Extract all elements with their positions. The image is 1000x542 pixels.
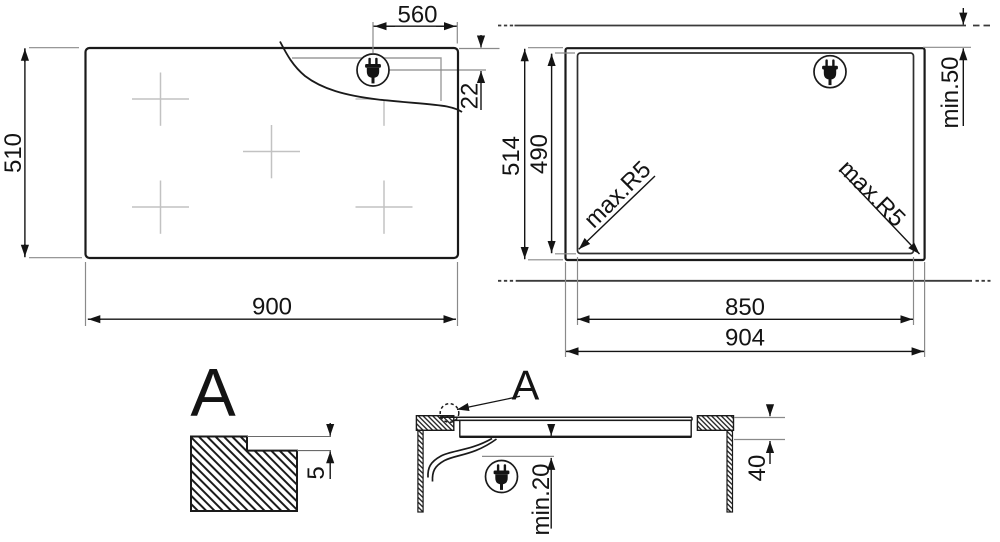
svg-text:510: 510 <box>0 133 27 173</box>
svg-text:min.50: min.50 <box>937 56 964 128</box>
svg-text:900: 900 <box>252 294 292 321</box>
svg-text:A: A <box>512 362 540 409</box>
svg-text:560: 560 <box>397 2 437 29</box>
svg-text:490: 490 <box>526 134 553 174</box>
svg-text:min.20: min.20 <box>528 463 555 535</box>
svg-text:22: 22 <box>457 83 484 110</box>
svg-text:max.R5: max.R5 <box>579 156 657 234</box>
svg-text:A: A <box>190 355 236 431</box>
svg-text:5: 5 <box>303 466 330 479</box>
svg-text:514: 514 <box>498 136 525 176</box>
svg-text:904: 904 <box>725 325 765 352</box>
svg-text:850: 850 <box>725 294 765 321</box>
svg-text:40: 40 <box>744 455 771 482</box>
svg-text:max.R5: max.R5 <box>833 155 911 233</box>
